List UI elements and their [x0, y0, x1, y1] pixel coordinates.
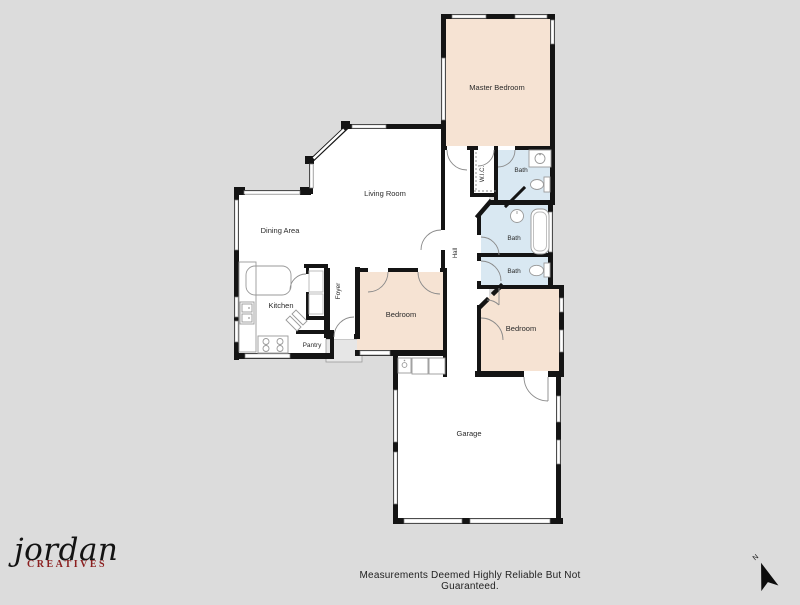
- room-label-pantry: Pantry: [303, 342, 323, 349]
- floorplan-drawing: Master Bedroom Living Room Dining Area K…: [0, 0, 800, 600]
- room-master-bedroom: [443, 16, 553, 148]
- brand-logo: jordan CREATIVES: [14, 535, 144, 570]
- room-label-bath-guest: Bath: [507, 268, 521, 275]
- room-label-garage: Garage: [456, 429, 481, 438]
- room-label-bath-master: Bath: [514, 167, 528, 174]
- room-label-kitchen: Kitchen: [268, 301, 293, 310]
- room-label-bedroom-middle: Bedroom: [386, 310, 416, 319]
- room-garage: [395, 356, 561, 521]
- north-arrow-icon: N: [752, 554, 779, 592]
- room-label-master-bedroom: Master Bedroom: [469, 83, 524, 92]
- room-label-living-room: Living Room: [364, 189, 406, 198]
- room-label-wic: W.I.C.: [480, 166, 486, 183]
- room-label-foyer: Foyer: [335, 282, 342, 299]
- room-label-dining-area: Dining Area: [261, 226, 301, 235]
- disclaimer-text: Measurements Deemed Highly Reliable But …: [348, 570, 592, 592]
- kitchen-stove: [258, 336, 288, 353]
- room-label-bedroom-rear: Bedroom: [506, 324, 536, 333]
- room-label-bath-hall: Bath: [507, 235, 521, 242]
- brand-subtitle: CREATIVES: [27, 559, 144, 570]
- floorplan-page: Master Bedroom Living Room Dining Area K…: [0, 0, 800, 600]
- north-label: N: [752, 554, 760, 563]
- room-label-hall: Hall: [453, 248, 459, 258]
- laundry-appliances: [398, 358, 445, 374]
